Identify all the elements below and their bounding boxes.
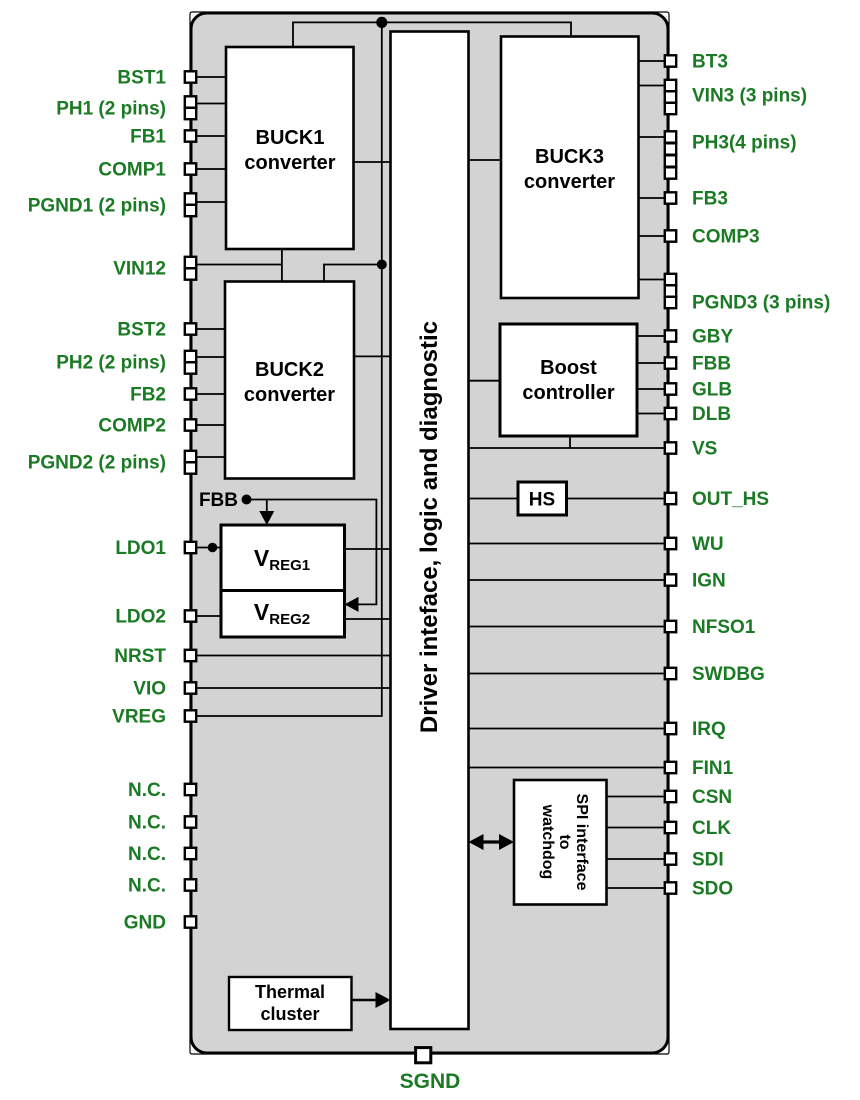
svg-text:PGND2 (2 pins): PGND2 (2 pins) (28, 453, 166, 474)
svg-text:LDO2: LDO2 (115, 607, 166, 628)
svg-text:VIO: VIO (133, 679, 166, 700)
svg-text:LDO1: LDO1 (115, 538, 166, 559)
svg-text:controller: controller (522, 382, 614, 404)
svg-text:BUCK2: BUCK2 (255, 359, 324, 381)
svg-text:COMP3: COMP3 (692, 227, 760, 248)
svg-text:CSN: CSN (692, 787, 732, 808)
svg-text:FB1: FB1 (130, 127, 166, 148)
svg-text:FIN1: FIN1 (692, 758, 734, 779)
svg-text:GBY: GBY (692, 327, 734, 348)
svg-text:converter: converter (524, 171, 615, 193)
svg-text:BT3: BT3 (692, 52, 728, 73)
svg-text:NRST: NRST (114, 646, 166, 667)
svg-text:GLB: GLB (692, 380, 732, 401)
svg-text:cluster: cluster (260, 1004, 319, 1024)
svg-text:Thermal: Thermal (255, 982, 325, 1002)
svg-text:N.C.: N.C. (128, 844, 166, 865)
svg-text:PH1 (2 pins): PH1 (2 pins) (56, 99, 166, 120)
svg-text:SGND: SGND (400, 1070, 461, 1093)
svg-text:N.C.: N.C. (128, 876, 166, 897)
svg-text:converter: converter (244, 384, 335, 406)
svg-text:BUCK3: BUCK3 (535, 146, 604, 168)
svg-text:PGND1 (2 pins): PGND1 (2 pins) (28, 196, 166, 217)
svg-text:VREG: VREG (112, 707, 166, 728)
svg-text:VS: VS (692, 439, 717, 460)
svg-text:PH2 (2 pins): PH2 (2 pins) (56, 353, 166, 374)
svg-text:Boost: Boost (540, 357, 597, 379)
svg-text:VIN3 (3 pins): VIN3 (3 pins) (692, 86, 807, 107)
svg-text:WU: WU (692, 534, 724, 555)
svg-text:FBB: FBB (199, 490, 238, 511)
svg-text:BUCK1: BUCK1 (256, 127, 325, 149)
svg-text:converter: converter (244, 152, 335, 174)
svg-text:DLB: DLB (692, 404, 731, 425)
svg-text:GND: GND (124, 913, 166, 934)
svg-text:IRQ: IRQ (692, 719, 726, 740)
svg-text:OUT_HS: OUT_HS (692, 489, 769, 510)
svg-text:CLK: CLK (692, 818, 731, 839)
svg-text:N.C.: N.C. (128, 813, 166, 834)
svg-text:HS: HS (529, 490, 555, 511)
svg-text:N.C.: N.C. (128, 780, 166, 801)
svg-text:NFSO1: NFSO1 (692, 617, 756, 638)
svg-text:Driver inteface, logic and dia: Driver inteface, logic and diagnostic (416, 321, 443, 733)
svg-text:BST1: BST1 (117, 68, 166, 89)
svg-text:PH3(4 pins): PH3(4 pins) (692, 133, 797, 154)
svg-text:SWDBG: SWDBG (692, 664, 765, 685)
svg-text:FBB: FBB (692, 354, 731, 375)
svg-text:COMP2: COMP2 (98, 416, 166, 437)
svg-text:FB3: FB3 (692, 189, 728, 210)
svg-text:IGN: IGN (692, 571, 726, 592)
svg-text:VIN12: VIN12 (113, 259, 166, 280)
svg-text:SDO: SDO (692, 879, 733, 900)
svg-text:COMP1: COMP1 (98, 160, 166, 181)
svg-text:BST2: BST2 (117, 320, 166, 341)
svg-text:PGND3 (3 pins): PGND3 (3 pins) (692, 293, 830, 314)
svg-text:SDI: SDI (692, 850, 724, 871)
svg-text:FB2: FB2 (130, 385, 166, 406)
